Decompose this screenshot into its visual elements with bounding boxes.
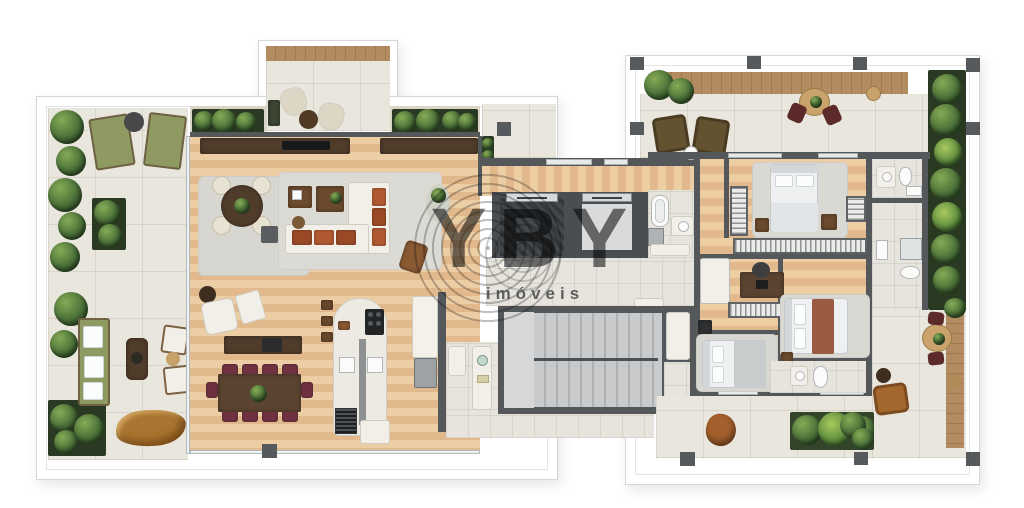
outdoor-sofa xyxy=(78,318,110,406)
shower xyxy=(900,238,922,260)
sun-lounger xyxy=(143,112,187,170)
plant-icon xyxy=(933,266,961,294)
plant-icon xyxy=(74,414,104,444)
service-cart xyxy=(360,420,390,444)
stair-rail xyxy=(534,358,658,361)
wardrobe xyxy=(730,186,748,236)
master-left-wall xyxy=(724,158,729,238)
service-counter xyxy=(448,346,466,376)
sofa-cushion xyxy=(314,230,334,245)
sofa-cushion xyxy=(372,208,386,226)
sink xyxy=(367,357,383,373)
planter-strip-right xyxy=(392,109,478,133)
sofa-cushion xyxy=(83,326,103,348)
terrace-table xyxy=(922,324,952,352)
dining-table xyxy=(218,374,301,412)
burner xyxy=(368,321,373,326)
pillow xyxy=(794,304,806,325)
plant-icon xyxy=(930,104,962,136)
floor-plan-canvas: YBY imóveis xyxy=(0,0,1024,508)
dining-chair xyxy=(301,382,313,398)
column xyxy=(966,122,980,135)
plant-icon xyxy=(930,168,962,200)
kitchen-stool xyxy=(321,300,333,310)
ottoman-cube xyxy=(261,226,278,243)
sofa-cushion xyxy=(83,382,103,400)
bath1-vanity xyxy=(876,166,896,188)
column xyxy=(262,444,277,458)
plant-icon xyxy=(54,430,78,454)
wardrobe xyxy=(846,196,866,222)
sofa-cushion xyxy=(336,230,356,245)
armchair xyxy=(200,297,239,336)
bath1-sink xyxy=(906,186,922,196)
burner xyxy=(368,312,373,317)
rust-throw xyxy=(812,299,834,354)
bath3-vanity xyxy=(790,366,808,386)
kitchen-stool xyxy=(321,316,333,326)
watermark-subtitle: imóveis xyxy=(450,284,620,304)
column xyxy=(747,56,761,69)
column xyxy=(966,452,980,466)
duvet xyxy=(734,341,766,388)
terrace-chair xyxy=(927,351,944,366)
pillow xyxy=(712,366,724,383)
coffee-table xyxy=(288,186,312,208)
fire-bowl xyxy=(131,352,143,364)
pillow xyxy=(712,346,724,363)
column xyxy=(966,58,980,72)
closet-2 xyxy=(728,302,782,318)
plant-icon xyxy=(58,212,86,240)
plant-icon xyxy=(852,428,874,450)
column xyxy=(853,57,867,70)
washer-door xyxy=(477,355,488,366)
wardrobe-white xyxy=(700,258,730,304)
plant-icon xyxy=(810,96,822,108)
sink-bowl xyxy=(795,371,805,381)
plant-icon xyxy=(931,234,961,264)
cooktop xyxy=(365,309,384,335)
column xyxy=(497,122,511,136)
sofa-cushion xyxy=(372,188,386,206)
plant-icon xyxy=(48,178,82,212)
plant-icon xyxy=(933,333,945,345)
plant-icon xyxy=(934,138,962,166)
pillow xyxy=(775,175,793,187)
pantry-cabinet xyxy=(472,346,492,410)
round-side-table xyxy=(124,112,144,132)
corner-planter-box xyxy=(92,198,126,250)
plant-icon xyxy=(194,111,214,131)
bedroom3-bed xyxy=(784,298,848,354)
balcony-deck xyxy=(266,46,390,61)
burner xyxy=(376,312,381,317)
pillow xyxy=(794,328,806,349)
grill-drawer xyxy=(335,408,357,434)
column xyxy=(854,452,868,465)
toilet xyxy=(899,167,912,186)
headboard xyxy=(785,299,792,355)
planter-strip-left xyxy=(192,109,264,133)
tv-panel xyxy=(282,141,330,150)
plant-icon xyxy=(236,112,256,132)
master-bed xyxy=(770,164,818,232)
headboard xyxy=(703,341,710,389)
toilet xyxy=(813,366,828,388)
pillow xyxy=(796,175,814,187)
kitchen-stool xyxy=(321,332,333,342)
plant-icon xyxy=(50,110,84,144)
side-table xyxy=(166,352,180,366)
interior-top-wall xyxy=(190,132,480,137)
nightstand xyxy=(755,218,769,232)
terrace-glass-wall xyxy=(186,136,190,454)
bath1-wall xyxy=(872,198,926,203)
sofa-cushion xyxy=(372,228,386,246)
core-bottom-strip xyxy=(446,412,654,438)
side-table-dark xyxy=(876,368,891,383)
breakfast-table xyxy=(221,185,263,227)
laptop xyxy=(756,280,768,289)
plant-icon xyxy=(50,330,78,358)
plant-icon xyxy=(330,192,342,204)
dining-console xyxy=(224,336,302,354)
watermark: YBY imóveis xyxy=(390,160,680,310)
plant-icon xyxy=(482,138,494,150)
island-divider xyxy=(359,339,366,425)
bedroom2-bed xyxy=(702,340,766,388)
column xyxy=(680,452,695,466)
plant-icon xyxy=(56,146,86,176)
toilet xyxy=(900,266,920,279)
tray xyxy=(292,190,302,200)
balcony-planter xyxy=(268,100,280,126)
plant-icon xyxy=(250,385,267,402)
sink-bowl xyxy=(882,172,892,182)
coffee-table xyxy=(316,186,344,212)
plant-icon xyxy=(668,78,694,104)
plant-icon xyxy=(94,200,120,226)
fire-table xyxy=(126,338,148,380)
plant-icon xyxy=(234,198,250,214)
plant-icon xyxy=(416,109,440,133)
watermark-title: YBY xyxy=(420,196,650,280)
window xyxy=(728,153,782,158)
bath2-sink xyxy=(876,240,888,260)
shelf-item xyxy=(477,375,489,383)
column xyxy=(630,122,644,135)
window xyxy=(818,153,858,158)
dresser xyxy=(698,320,712,334)
leather-armchair xyxy=(872,382,910,416)
wing-top-wall xyxy=(648,152,930,159)
terrace-chair xyxy=(927,311,944,326)
bottom-glass-wall xyxy=(190,450,480,454)
stair-closet xyxy=(666,312,690,360)
plant-icon xyxy=(394,111,416,133)
plant-icon xyxy=(50,242,80,272)
desk-chair xyxy=(752,262,770,278)
sofa-cushion xyxy=(84,356,104,378)
grill-box xyxy=(262,338,282,352)
stair-landing xyxy=(504,312,534,408)
bottom-left-planter xyxy=(48,400,106,456)
sink xyxy=(339,357,355,373)
duvet xyxy=(771,203,818,232)
cutting-board xyxy=(338,321,350,330)
column xyxy=(630,57,644,70)
burner xyxy=(376,321,381,326)
console-right xyxy=(380,138,478,154)
terrace-pot xyxy=(946,374,962,388)
right-edge-planter xyxy=(928,70,966,310)
side-table xyxy=(292,216,305,229)
plant-icon xyxy=(98,224,122,248)
plant-icon xyxy=(212,109,236,133)
sofa-cushion xyxy=(292,230,312,245)
round-coffee-table xyxy=(299,110,318,129)
master-closet-run xyxy=(733,238,867,254)
dining-chair xyxy=(206,382,218,398)
range-oven xyxy=(414,358,437,388)
headboard xyxy=(771,165,819,173)
plant-icon xyxy=(932,202,962,232)
plant-icon xyxy=(458,113,476,131)
plant-icon xyxy=(932,74,962,104)
plant-icon xyxy=(944,298,966,318)
nightstand xyxy=(821,214,837,230)
sideboard xyxy=(200,138,350,154)
terrace-stool xyxy=(866,86,881,101)
